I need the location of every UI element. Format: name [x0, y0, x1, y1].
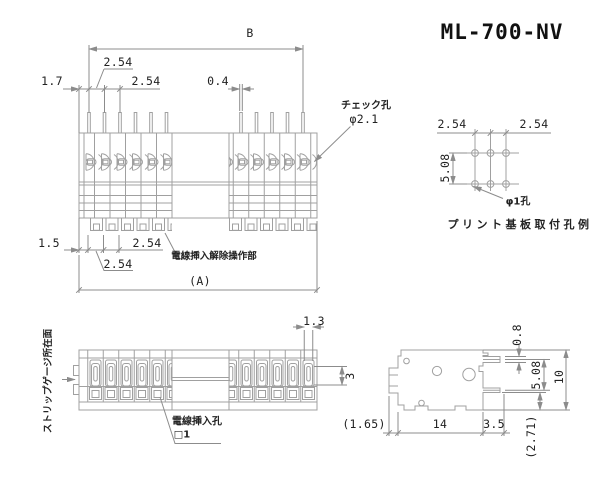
hole-pattern-drawing — [462, 129, 519, 191]
top-view-drawing — [79, 113, 319, 231]
release-label: 電線挿入解除操作部 — [171, 248, 257, 262]
technical-drawing: ML-700-NV B 2.54 2.54 1.7 0.4 チェック孔 φ2.1… — [0, 0, 600, 488]
dim-bottom-margin: 1.5 — [38, 236, 60, 250]
check-hole-dia: φ2.1 — [350, 112, 379, 126]
wire-hole-size: □1 — [174, 430, 190, 441]
solder-pins — [88, 113, 305, 134]
dim-pitch-top-1: 2.54 — [104, 55, 133, 69]
dim-pin-pitch: 5.08 — [529, 361, 543, 390]
dim-overall-a: (A) — [189, 274, 211, 288]
dim-slot-width: 1.3 — [303, 314, 325, 328]
hp-caption: プリント基板取付孔例 — [448, 216, 593, 232]
dim-pin-width: 0.4 — [207, 74, 229, 88]
dim-pitch-top-2: 2.54 — [132, 74, 161, 88]
check-hole-label: チェック孔 — [341, 97, 391, 112]
dim-slot-height: 3 — [343, 372, 357, 379]
dim-pin-length: 3.5 — [483, 417, 505, 431]
dim-pitch-bottom-1: 2.54 — [133, 236, 162, 250]
dim-pitch-bottom-2: 2.54 — [104, 257, 133, 271]
check-holes-right — [223, 154, 320, 231]
hp-dim-pitch-right: 2.54 — [520, 117, 549, 131]
dim-ref-left: (1.65) — [342, 417, 385, 431]
strip-gauge-label: ストリップゲージ所在面 — [40, 329, 54, 433]
dim-pin-thickness: 0.8 — [510, 324, 524, 346]
hp-dim-row-pitch: 5.08 — [438, 154, 452, 183]
wire-hole-label: 電線挿入孔 — [172, 413, 222, 428]
hole-pattern-dimensions — [437, 130, 551, 198]
hp-hole-label: φ1孔 — [506, 193, 531, 208]
side-view-drawing — [389, 350, 500, 410]
dim-b: B — [246, 26, 253, 40]
hp-dim-pitch-left: 2.54 — [438, 117, 467, 131]
drawing-linework — [0, 0, 600, 488]
dim-left-margin: 1.7 — [41, 74, 63, 88]
front-view-drawing — [74, 350, 318, 410]
dim-ref-bottom: (2.71) — [524, 415, 538, 458]
side-view-dimensions — [383, 345, 570, 436]
dim-height: 10 — [552, 370, 566, 384]
drawing-title: ML-700-NV — [441, 20, 564, 44]
dim-depth: 14 — [433, 417, 447, 431]
check-holes-left — [86, 154, 180, 231]
